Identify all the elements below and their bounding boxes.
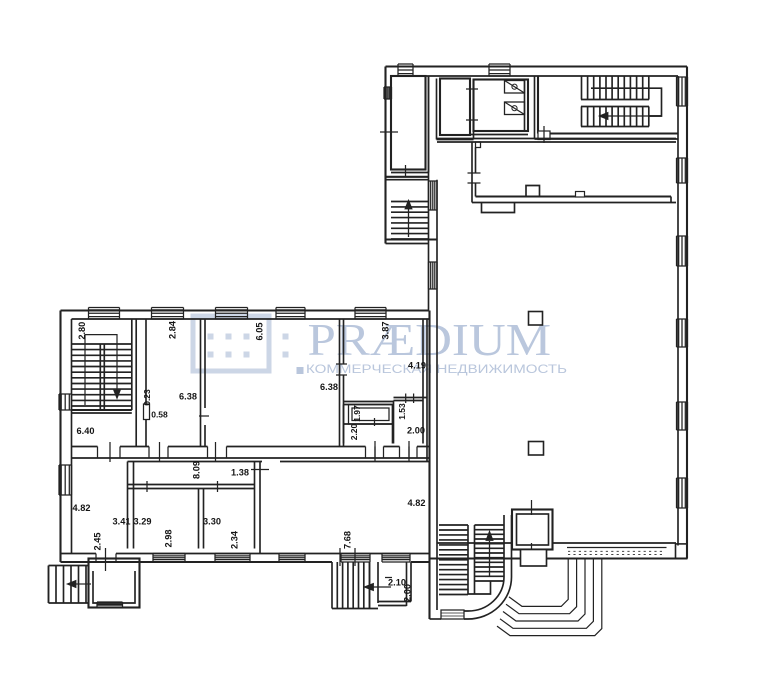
svg-text:2.20: 2.20: [349, 423, 359, 440]
svg-text:6.05: 6.05: [254, 323, 264, 341]
svg-text:6.40: 6.40: [77, 426, 95, 436]
svg-text:2.84: 2.84: [167, 320, 177, 339]
svg-text:4.82: 4.82: [408, 498, 426, 508]
svg-text:6.38: 6.38: [179, 391, 197, 401]
svg-text:3.30: 3.30: [203, 516, 221, 526]
svg-text:1.97: 1.97: [352, 405, 362, 422]
svg-text:2.00: 2.00: [402, 584, 412, 602]
svg-text:2.00: 2.00: [407, 425, 425, 435]
svg-text:3.41: 3.41: [113, 516, 131, 526]
svg-text:4.82: 4.82: [73, 503, 91, 513]
svg-text:1.53: 1.53: [397, 403, 407, 420]
svg-text:1.38: 1.38: [231, 467, 249, 477]
svg-text:7.68: 7.68: [342, 531, 352, 549]
svg-text:0.23: 0.23: [142, 389, 152, 406]
svg-text:2.45: 2.45: [92, 533, 102, 551]
svg-text:6.38: 6.38: [320, 382, 338, 392]
svg-text:2.80: 2.80: [77, 322, 87, 340]
svg-text:0.58: 0.58: [151, 410, 168, 420]
svg-text:8.09: 8.09: [191, 461, 201, 479]
svg-text:2.34: 2.34: [229, 530, 239, 549]
svg-text:3.87: 3.87: [380, 322, 390, 340]
svg-text:4.19: 4.19: [408, 360, 426, 370]
svg-text:2.98: 2.98: [163, 530, 173, 548]
svg-text:3.29: 3.29: [134, 516, 152, 526]
